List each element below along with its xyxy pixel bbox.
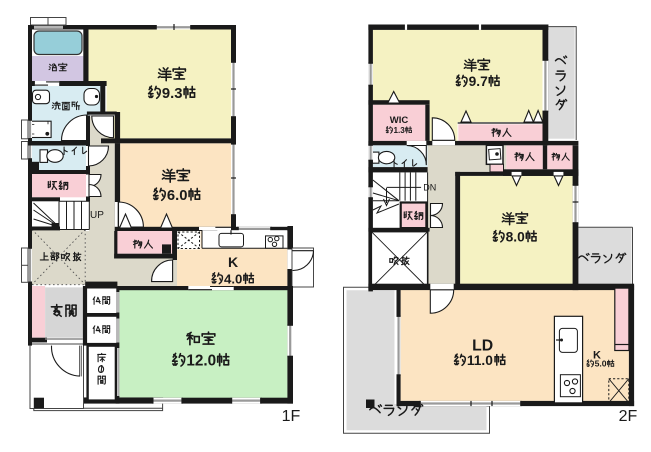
svg-text:WIC: WIC [390, 115, 409, 126]
svg-text:9.3: 9.3 [162, 86, 183, 102]
svg-text:UP: UP [90, 210, 104, 221]
svg-text:1F: 1F [282, 408, 301, 425]
svg-text:8.0: 8.0 [506, 230, 525, 245]
svg-text:9.7: 9.7 [469, 74, 488, 89]
svg-text:12.0: 12.0 [186, 353, 216, 370]
svg-text:2F: 2F [619, 408, 638, 425]
svg-text:6.0: 6.0 [167, 188, 188, 204]
svg-text:DN: DN [423, 183, 436, 193]
svg-text:1.3: 1.3 [393, 126, 405, 135]
svg-text:K: K [228, 254, 238, 270]
svg-text:4.0: 4.0 [224, 271, 242, 286]
svg-text:5.0: 5.0 [595, 359, 607, 369]
svg-text:11.0: 11.0 [467, 353, 493, 368]
